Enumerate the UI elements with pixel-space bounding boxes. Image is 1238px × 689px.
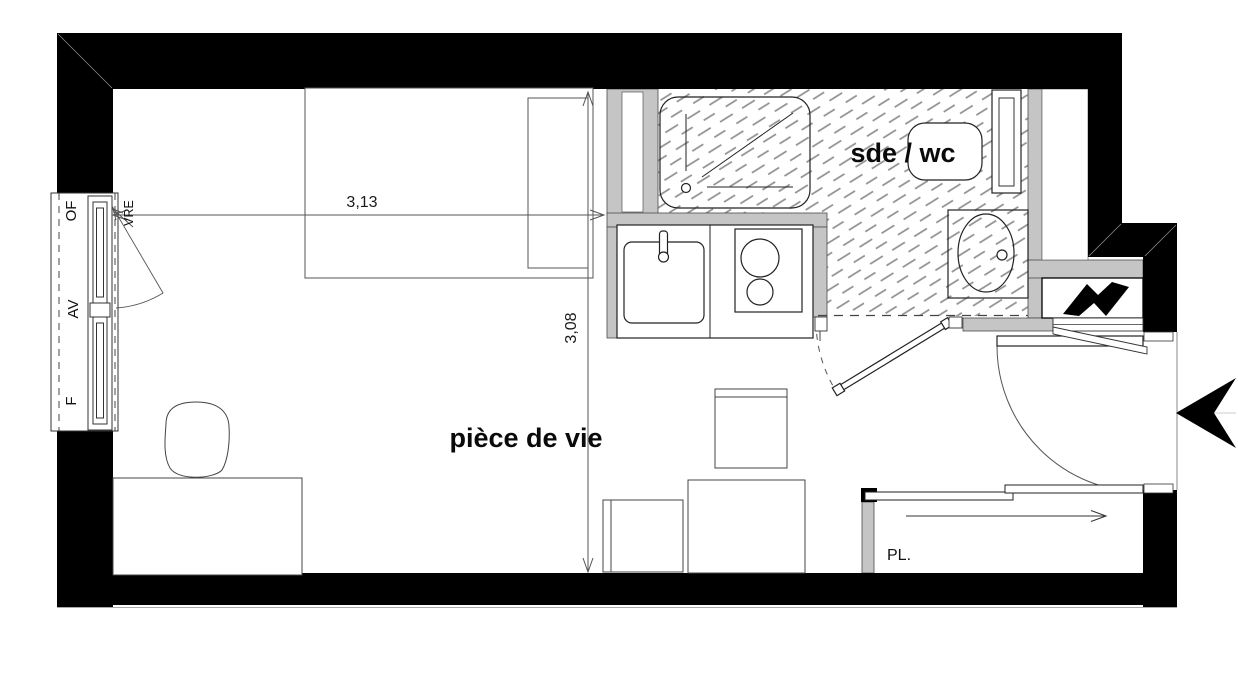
wall-bottom bbox=[113, 573, 1145, 605]
dim-value-vertical: 3,08 bbox=[563, 312, 580, 343]
entry-top-wall bbox=[1028, 260, 1143, 278]
chair-west bbox=[603, 500, 683, 572]
bathroom-door-jamb-left bbox=[815, 317, 827, 331]
closet-left-wall bbox=[862, 502, 874, 573]
closet-sliding-panel-right bbox=[1005, 485, 1143, 493]
chair-north bbox=[715, 389, 787, 468]
bed-outline bbox=[305, 88, 593, 278]
table bbox=[688, 480, 805, 573]
sink-faucet-base bbox=[659, 252, 669, 262]
washbasin-faucet bbox=[997, 250, 1007, 260]
wall-left-upper bbox=[57, 33, 113, 193]
window-mullion bbox=[90, 303, 110, 317]
wall-left-lower bbox=[57, 431, 113, 607]
dim-value-horizontal: 3,13 bbox=[346, 194, 377, 211]
bathroom-south-wall bbox=[963, 318, 1053, 331]
living-room-label: pièce de vie bbox=[449, 423, 602, 453]
entry-jamb-top bbox=[1144, 332, 1173, 341]
duct-shaft bbox=[622, 92, 643, 212]
closet-label: PL. bbox=[887, 547, 911, 564]
desk-chair bbox=[165, 402, 229, 477]
bathroom-right-wall bbox=[1028, 89, 1042, 318]
wall-right-upper bbox=[1088, 89, 1122, 223]
window-label-f: F bbox=[63, 396, 80, 405]
wall-top bbox=[57, 33, 1122, 89]
electrical-panel bbox=[1042, 278, 1143, 318]
wall-right-band bbox=[1088, 223, 1177, 257]
floorplan-page: pièce de vie sde / wc PL. 3,13 3,08 OF A… bbox=[0, 0, 1238, 689]
window-label-av: AV bbox=[65, 300, 82, 319]
window-label-vre: VRE bbox=[122, 200, 136, 226]
entry-jamb-bottom bbox=[1144, 484, 1173, 493]
wall-right-mid bbox=[1143, 257, 1177, 332]
kitchen-left-wall bbox=[607, 227, 617, 338]
kitchenette bbox=[617, 225, 813, 338]
kitchen-right-wall bbox=[813, 227, 827, 317]
bed bbox=[305, 88, 593, 278]
wall-right-lower bbox=[1143, 490, 1177, 607]
shower-drain bbox=[682, 184, 691, 193]
floor-plan: pièce de vie sde / wc PL. 3,13 3,08 OF A… bbox=[0, 0, 1238, 689]
towel-radiator bbox=[992, 90, 1021, 193]
bathroom-door-jamb-right bbox=[949, 317, 962, 328]
window-label-of: OF bbox=[63, 201, 80, 222]
bathroom-label: sde / wc bbox=[850, 138, 955, 168]
desk bbox=[113, 478, 302, 575]
entry-niche bbox=[1042, 89, 1088, 260]
closet-sliding-panel-left bbox=[865, 492, 1013, 500]
